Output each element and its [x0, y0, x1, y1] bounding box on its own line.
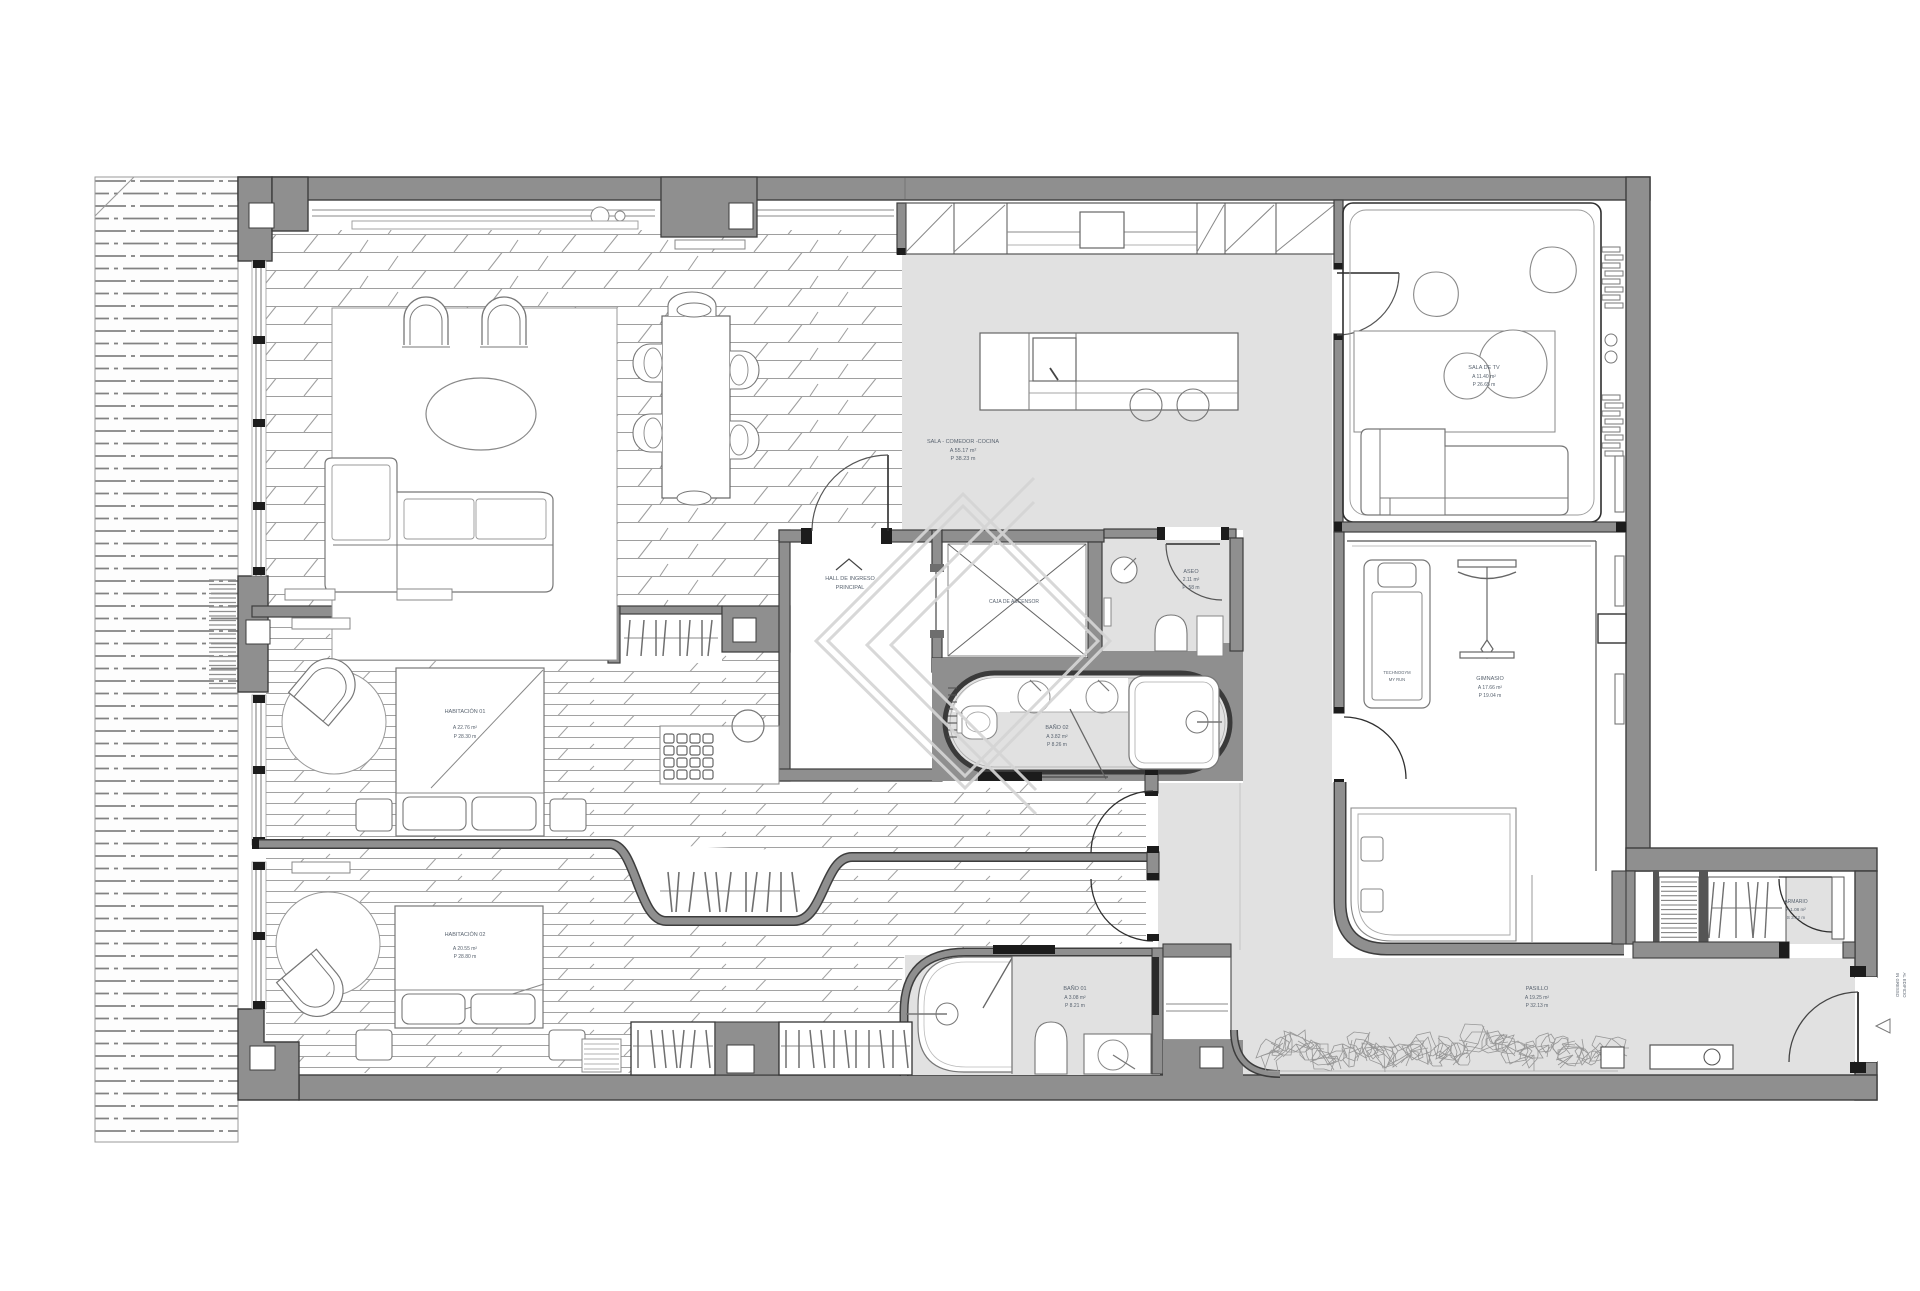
- svg-text:A 20.55 m²: A 20.55 m²: [453, 946, 478, 952]
- svg-text:IN GRESSO: IN GRESSO: [1895, 973, 1900, 998]
- svg-text:A 22.76 m²: A 22.76 m²: [453, 725, 478, 731]
- svg-text:P 8.26 m: P 8.26 m: [1047, 742, 1067, 748]
- svg-text:ARMARIO: ARMARIO: [1784, 899, 1807, 905]
- svg-text:TECHNOGYM: TECHNOGYM: [1383, 670, 1411, 675]
- svg-text:P 28.30 m: P 28.30 m: [454, 734, 477, 740]
- svg-text:A 11.40 m²: A 11.40 m²: [1472, 374, 1496, 380]
- svg-text:SALA - COMEDOR -COCINA: SALA - COMEDOR -COCINA: [927, 439, 999, 445]
- svg-text:MY RUN: MY RUN: [1389, 677, 1405, 682]
- svg-text:CAJA DE ASCENSOR: CAJA DE ASCENSOR: [989, 599, 1039, 605]
- svg-text:ASEO: ASEO: [1183, 569, 1199, 575]
- svg-text:A 1.08 m²: A 1.08 m²: [1786, 907, 1806, 912]
- svg-text:HABITACIÓN 02: HABITACIÓN 02: [445, 931, 486, 938]
- svg-text:A 3.08 m²: A 3.08 m²: [1064, 995, 1086, 1001]
- svg-text:HALL DE INGRESO: HALL DE INGRESO: [825, 576, 875, 582]
- svg-text:AL EDIFICIO: AL EDIFICIO: [1902, 973, 1907, 999]
- svg-text:A 19.25 m²: A 19.25 m²: [1525, 995, 1550, 1001]
- svg-text:HABITACIÓN 01: HABITACIÓN 01: [445, 708, 486, 715]
- svg-text:BAÑO 02: BAÑO 02: [1045, 724, 1068, 731]
- svg-text:P 28.80 m: P 28.80 m: [454, 954, 477, 960]
- svg-text:P 32.13 m: P 32.13 m: [1526, 1003, 1549, 1009]
- svg-text:A 3.82 m²: A 3.82 m²: [1046, 734, 1068, 740]
- svg-text:P 8.21 m: P 8.21 m: [1065, 1003, 1085, 1009]
- svg-text:PRINCIPAL: PRINCIPAL: [836, 585, 865, 591]
- svg-text:PASILLO: PASILLO: [1526, 986, 1549, 992]
- svg-text:P 26.65 m: P 26.65 m: [1473, 382, 1496, 388]
- svg-text:BAÑO 01: BAÑO 01: [1063, 985, 1086, 992]
- svg-text:A 55.17 m²: A 55.17 m²: [950, 448, 977, 454]
- svg-text:A 17.66 m²: A 17.66 m²: [1478, 685, 1503, 691]
- svg-text:P .58 m: P .58 m: [1182, 585, 1199, 591]
- svg-text:GIMNASIO: GIMNASIO: [1476, 676, 1504, 682]
- svg-text:P 19.04 m: P 19.04 m: [1479, 693, 1502, 699]
- svg-text:2.11 m²: 2.11 m²: [1183, 577, 1200, 583]
- svg-text:SALA DE TV: SALA DE TV: [1468, 365, 1500, 371]
- svg-text:P 38.23 m: P 38.23 m: [951, 456, 976, 462]
- svg-text:S 3.12 m: S 3.12 m: [1787, 915, 1806, 920]
